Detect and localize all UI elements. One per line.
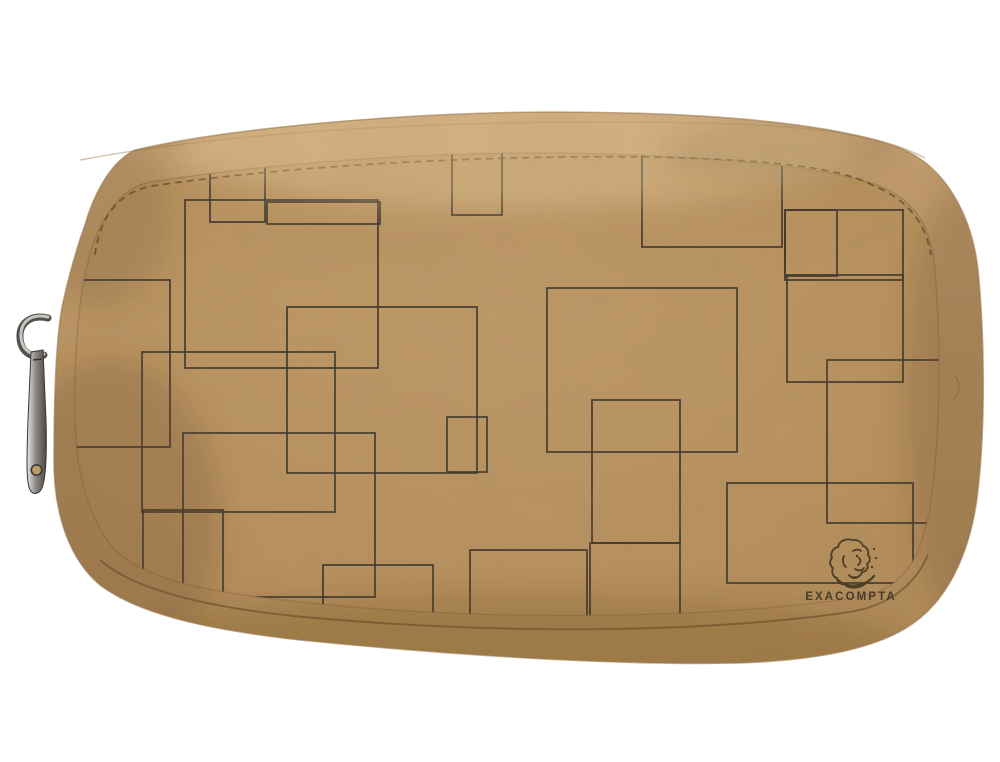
product-photo: EXACOMPTA: [0, 0, 1000, 762]
zipper-pull-hole: [31, 465, 41, 475]
product-photo-stage: EXACOMPTA: [0, 0, 1000, 762]
zipper-pull-slot: [33, 359, 42, 360]
